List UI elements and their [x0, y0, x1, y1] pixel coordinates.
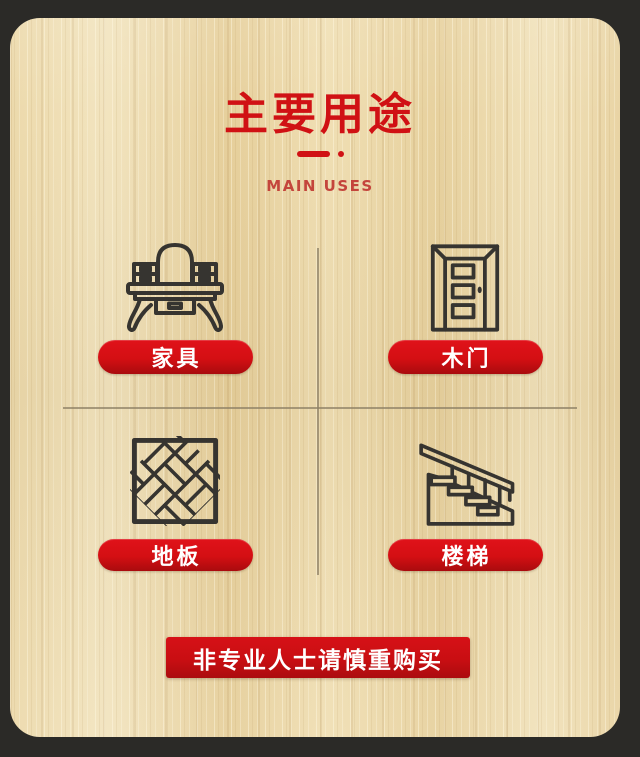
warning-banner: 非专业人士请慎重购买 [166, 637, 470, 678]
title-divider [0, 151, 640, 157]
use-cell-furniture: 家具 [30, 230, 320, 374]
promo-image: 主要用途 MAIN USES [0, 0, 640, 757]
staircase-icon [412, 434, 518, 526]
door-label: 木门 [388, 340, 543, 374]
stairs-label: 楼梯 [388, 539, 543, 571]
divider-dash [297, 151, 330, 157]
horizontal-divider-line [63, 407, 577, 409]
page-subtitle: MAIN USES [0, 177, 640, 195]
floor-icon-box [130, 434, 220, 526]
use-cell-door: 木门 [320, 230, 610, 374]
use-cell-floor: 地板 [30, 434, 320, 571]
furniture-label: 家具 [98, 340, 253, 374]
page-title: 主要用途 [0, 78, 640, 142]
vanity-table-icon [125, 237, 225, 335]
furniture-icon-box [125, 230, 225, 335]
divider-dot [338, 151, 344, 157]
parquet-floor-icon [130, 436, 220, 526]
stairs-icon-box [412, 434, 518, 526]
floor-label: 地板 [98, 539, 253, 571]
door-icon-box [429, 230, 501, 335]
wooden-door-icon [429, 241, 501, 335]
use-cell-stairs: 楼梯 [320, 434, 610, 571]
